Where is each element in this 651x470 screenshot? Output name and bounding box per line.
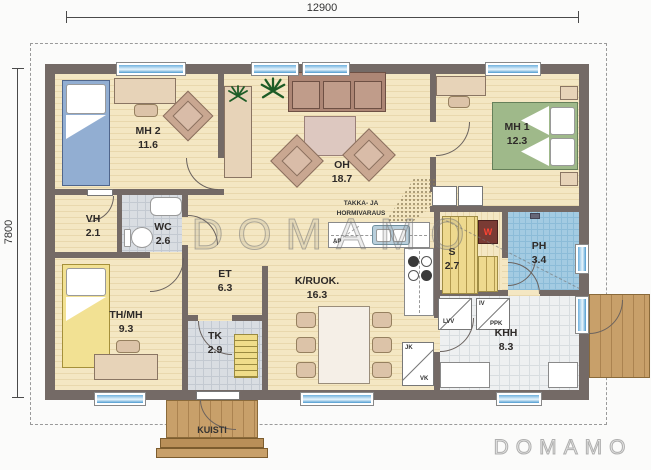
room-label-vh: VH2.1 — [68, 212, 118, 240]
window-pane — [303, 395, 371, 403]
wall — [188, 315, 198, 321]
window-pane — [119, 65, 183, 73]
nightstand — [560, 86, 578, 100]
window-pane — [305, 65, 347, 73]
shower-fixture-icon — [530, 213, 540, 219]
room-label-khh: KHH8.3 — [481, 326, 531, 354]
khh-counter — [440, 362, 490, 388]
window — [251, 62, 299, 76]
bed-pillow — [66, 84, 106, 114]
stove-burner — [421, 270, 432, 281]
sofa — [288, 72, 386, 112]
desk — [94, 354, 158, 380]
watermark-corner: DOMAMO — [478, 436, 648, 460]
window — [300, 392, 374, 406]
dimension-height-label: 7800 — [3, 207, 15, 257]
wall — [262, 266, 268, 390]
dining-chair — [372, 362, 392, 378]
dining-table — [318, 306, 370, 384]
room-label-ph: PH3.4 — [514, 239, 564, 267]
room-label-mh2: MH 211.6 — [118, 124, 178, 152]
sofa-cushion — [354, 81, 382, 109]
window-pane — [97, 395, 143, 403]
wall — [113, 189, 224, 195]
room-label-kruok: K/RUOK.16.3 — [282, 274, 352, 302]
bed-pillow — [550, 138, 575, 166]
dimension-tick — [66, 11, 67, 23]
door-pane — [578, 299, 586, 331]
watermark-center: DOMAMO — [165, 210, 505, 260]
desk — [436, 76, 486, 96]
porch-step — [156, 448, 268, 458]
bed-pillow — [550, 107, 575, 135]
window — [575, 244, 589, 274]
wardrobe — [458, 186, 483, 206]
window — [485, 62, 541, 76]
dining-chair — [296, 337, 316, 353]
counter-centerline — [419, 251, 420, 313]
bed-fold — [66, 115, 106, 139]
wall — [540, 290, 579, 296]
window-pane — [499, 395, 539, 403]
dining-chair — [296, 362, 316, 378]
khh-counter — [548, 362, 578, 388]
room-label-tk: TK2.9 — [192, 329, 238, 357]
entrance-door-leaf — [196, 391, 240, 400]
desk-chair — [134, 104, 158, 117]
bed-single — [62, 80, 110, 186]
room-label-oh: OH18.7 — [312, 158, 372, 186]
dimension-tick — [578, 11, 579, 23]
wall — [55, 252, 150, 258]
freezer-label: VK — [420, 376, 428, 382]
stove-burner — [408, 270, 419, 281]
dimension-tick — [12, 68, 24, 69]
sofa-cushion — [323, 81, 351, 109]
porch-label: KUISTI — [178, 424, 246, 438]
window — [94, 392, 146, 406]
dimension-tick — [12, 397, 24, 398]
bed-pillow — [66, 268, 106, 296]
toilet-tank — [124, 229, 131, 247]
dining-chair — [372, 337, 392, 353]
window-pane — [578, 247, 586, 271]
plant-icon — [226, 84, 250, 108]
window — [496, 392, 542, 406]
window — [302, 62, 350, 76]
wardrobe — [432, 186, 457, 206]
wall — [55, 189, 87, 195]
desk — [114, 78, 176, 104]
nightstand — [560, 172, 578, 186]
desk-chair — [448, 96, 470, 108]
porch-step — [160, 438, 264, 448]
window — [116, 62, 186, 76]
sofa-cushion — [292, 81, 320, 109]
dining-chair — [296, 312, 316, 328]
room-label-mh1: MH 112.3 — [482, 120, 552, 148]
appliance-diagonal — [402, 348, 434, 381]
sauna-bench-step — [478, 256, 498, 292]
door-leaf — [87, 189, 113, 196]
fridge-label: JK — [405, 345, 413, 351]
fireplace-annotation-line1: TAKKA- JA — [344, 200, 379, 207]
window-pane — [488, 65, 538, 73]
room-label-thmh: TH/MH9.3 — [96, 308, 156, 336]
armchair-seat — [281, 145, 312, 176]
room-label-et: ET6.3 — [200, 267, 250, 295]
wall — [232, 315, 262, 321]
exterior-door-glazed — [575, 296, 589, 334]
plant-icon — [258, 76, 288, 106]
dimension-line-top — [66, 17, 578, 18]
desk-chair — [116, 340, 140, 353]
floor-plan: 12900 7800 AP JK VK — [0, 0, 651, 470]
dimension-line-left — [17, 68, 18, 398]
ventilation-label: IV — [479, 301, 485, 307]
window-pane — [254, 65, 296, 73]
dining-chair — [372, 312, 392, 328]
dimension-width-label: 12900 — [292, 2, 352, 14]
